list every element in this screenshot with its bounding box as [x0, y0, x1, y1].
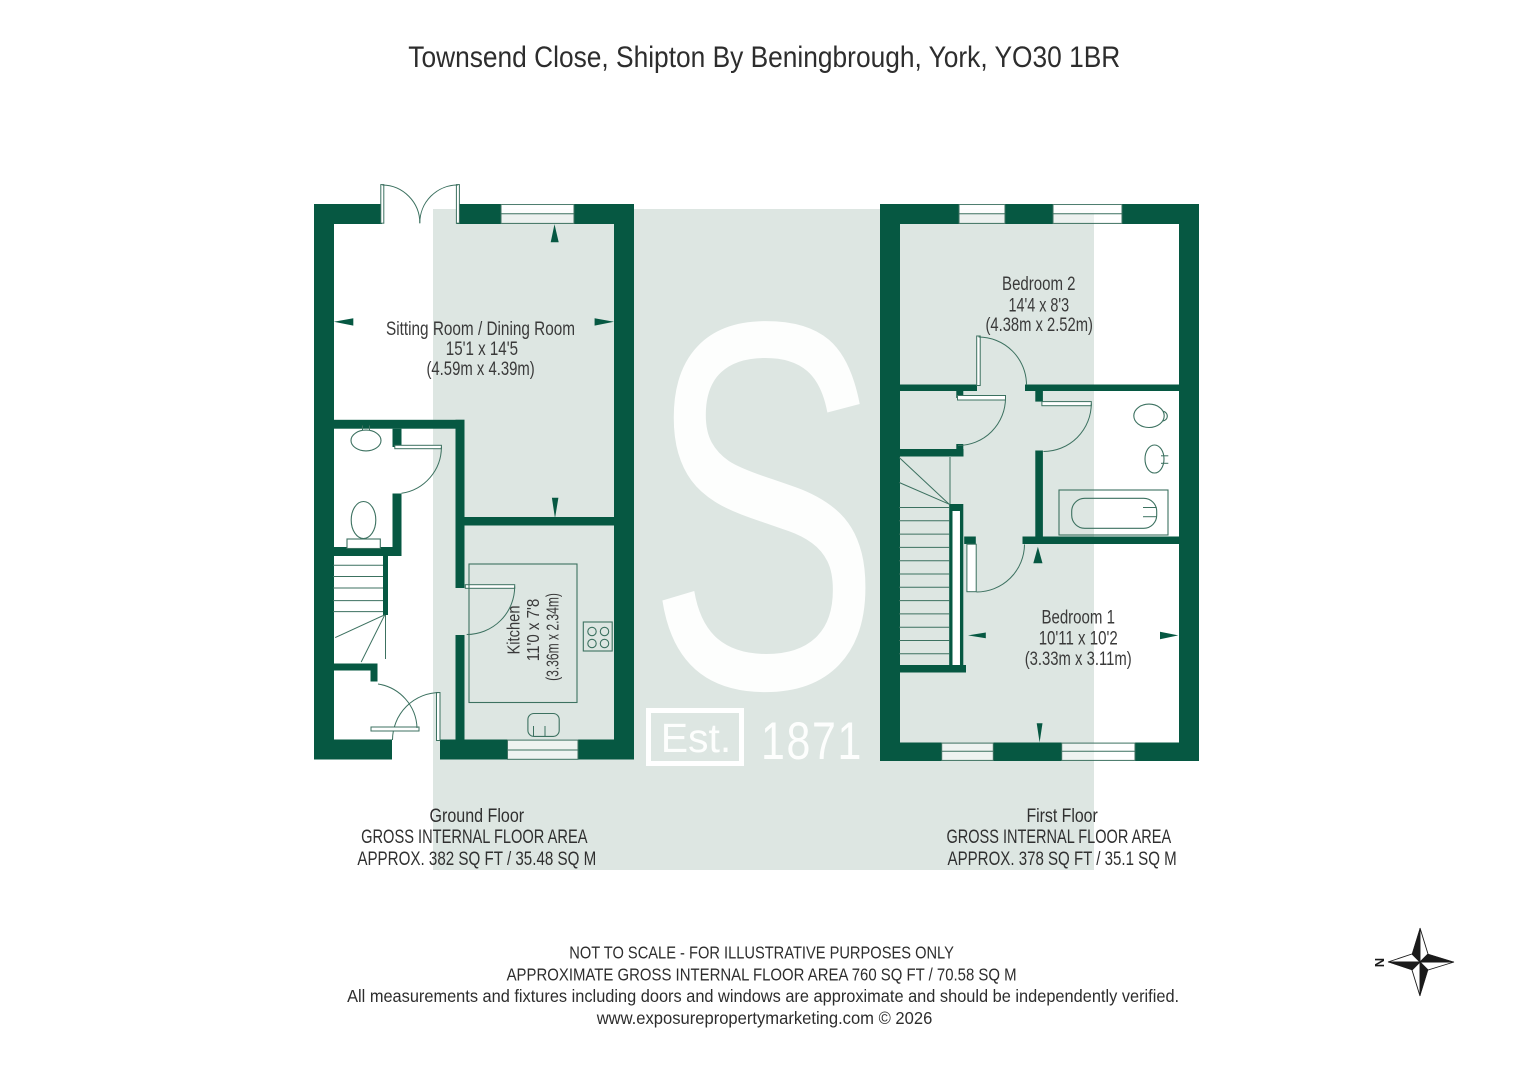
svg-text:Sitting Room / Dining Room: Sitting Room / Dining Room: [386, 319, 575, 340]
svg-text:14'4 x 8'3: 14'4 x 8'3: [1009, 296, 1070, 317]
svg-text:1871: 1871: [761, 712, 863, 771]
svg-text:(4.38m x 2.52m): (4.38m x 2.52m): [986, 315, 1093, 336]
svg-text:Bedroom 2: Bedroom 2: [1002, 274, 1076, 295]
svg-text:All measurements and fixtures: All measurements and fixtures including …: [347, 986, 1179, 1006]
svg-text:NOT TO SCALE - FOR ILLUSTRATIV: NOT TO SCALE - FOR ILLUSTRATIVE PURPOSES…: [569, 942, 954, 962]
svg-text:N: N: [1372, 958, 1387, 967]
svg-text:www.exposurepropertymarketing.: www.exposurepropertymarketing.com © 2026: [596, 1008, 933, 1028]
svg-text:15'1 x 14'5: 15'1 x 14'5: [446, 339, 518, 360]
svg-text:APPROX. 382 SQ FT / 35.48 SQ M: APPROX. 382 SQ FT / 35.48 SQ M: [357, 848, 596, 870]
svg-text:(3.36m x 2.34m): (3.36m x 2.34m): [543, 593, 563, 681]
svg-text:APPROXIMATE GROSS INTERNAL FLO: APPROXIMATE GROSS INTERNAL FLOOR AREA 76…: [507, 965, 1017, 985]
svg-text:GROSS INTERNAL FLOOR AREA: GROSS INTERNAL FLOOR AREA: [946, 826, 1171, 848]
svg-text:(3.33m x 3.11m): (3.33m x 3.11m): [1025, 649, 1132, 670]
svg-text:Ground Floor: Ground Floor: [430, 805, 525, 827]
svg-text:11'0 x 7'8: 11'0 x 7'8: [523, 599, 543, 661]
svg-text:Kitchen: Kitchen: [504, 606, 524, 655]
svg-text:10'11 x 10'2: 10'11 x 10'2: [1039, 628, 1118, 649]
svg-text:Bedroom 1: Bedroom 1: [1041, 608, 1115, 629]
svg-text:First Floor: First Floor: [1026, 805, 1098, 827]
svg-text:APPROX. 378 SQ FT / 35.1 SQ M: APPROX. 378 SQ FT / 35.1 SQ M: [948, 848, 1177, 870]
svg-text:Townsend Close, Shipton By Ben: Townsend Close, Shipton By Beningbrough,…: [408, 41, 1120, 74]
svg-text:GROSS INTERNAL FLOOR AREA: GROSS INTERNAL FLOOR AREA: [361, 826, 587, 848]
svg-text:Est.: Est.: [661, 715, 732, 761]
svg-text:(4.59m x 4.39m): (4.59m x 4.39m): [426, 359, 534, 380]
